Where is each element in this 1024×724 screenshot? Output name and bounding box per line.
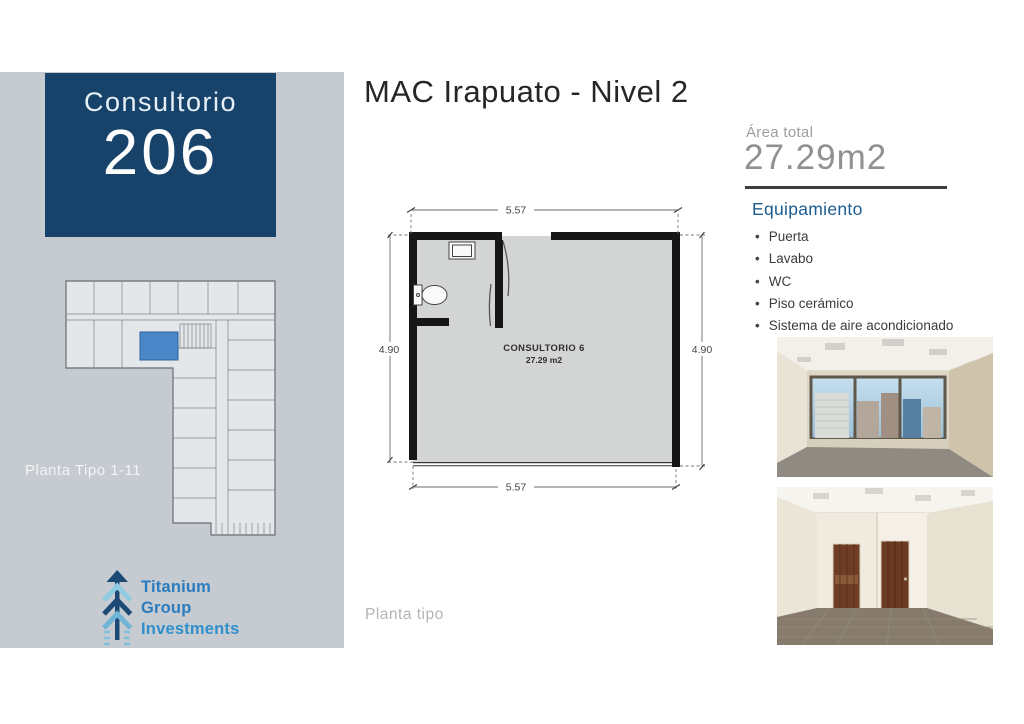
equipment-item: Piso cerámico: [755, 293, 953, 315]
photo2-door-left: [833, 544, 860, 609]
company-logo: Titanium Group Investments: [100, 570, 240, 646]
photo-office-window: [777, 337, 993, 477]
building-outline: [66, 281, 275, 535]
mini-plan-caption: Planta Tipo 1-11: [25, 462, 141, 479]
room-name-label: CONSULTORIO 6: [503, 342, 584, 353]
photo-room-doors: [777, 487, 993, 645]
logo-line-3: Investments: [141, 619, 240, 640]
dim-right: 4.90: [692, 344, 713, 356]
sidebar: Consultorio 206 Planta Tipo 1-11: [0, 72, 344, 648]
building-mini-plan: [58, 278, 280, 536]
dim-left: 4.90: [379, 344, 400, 356]
section-divider: [745, 186, 947, 189]
highlighted-unit: [140, 332, 178, 360]
dim-bottom: 5.57: [506, 482, 527, 494]
logo-line-2: Group: [141, 598, 240, 619]
equipment-item: Sistema de aire acondicionado: [755, 315, 953, 337]
photo2-left-wall: [777, 497, 817, 617]
unit-number: 206: [45, 120, 276, 184]
unit-card: Consultorio 206: [45, 73, 276, 237]
photo2-door-center: [881, 541, 909, 611]
photo1-window: [811, 377, 945, 439]
area-total-value: 27.29m2: [744, 138, 887, 178]
unit-label: Consultorio: [45, 87, 276, 118]
sink-basin: [453, 245, 472, 257]
equipment-item: WC: [755, 271, 953, 293]
slide: Consultorio 206 Planta Tipo 1-11: [0, 0, 1024, 724]
titanium-logo-icon: [100, 570, 134, 646]
room-area-label: 27.29 m2: [526, 355, 563, 365]
equipment-item: Lavabo: [755, 248, 953, 270]
equipment-heading: Equipamiento: [752, 199, 863, 220]
floorplan-caption: Planta tipo: [365, 606, 444, 624]
page-title: MAC Irapuato - Nivel 2: [364, 74, 689, 110]
window-wall: [413, 463, 672, 466]
logo-text: Titanium Group Investments: [141, 577, 240, 640]
equipment-item: Puerta: [755, 226, 953, 248]
logo-line-1: Titanium: [141, 577, 240, 598]
toilet-bowl: [422, 286, 447, 305]
unit-floorplan: 5.57 5.57 4.90 4.90 CONSULTORIO 6 27.29 …: [370, 192, 720, 502]
dim-top: 5.57: [506, 205, 527, 217]
equipment-list: Puerta Lavabo WC Piso cerámico Sistema d…: [755, 226, 953, 337]
